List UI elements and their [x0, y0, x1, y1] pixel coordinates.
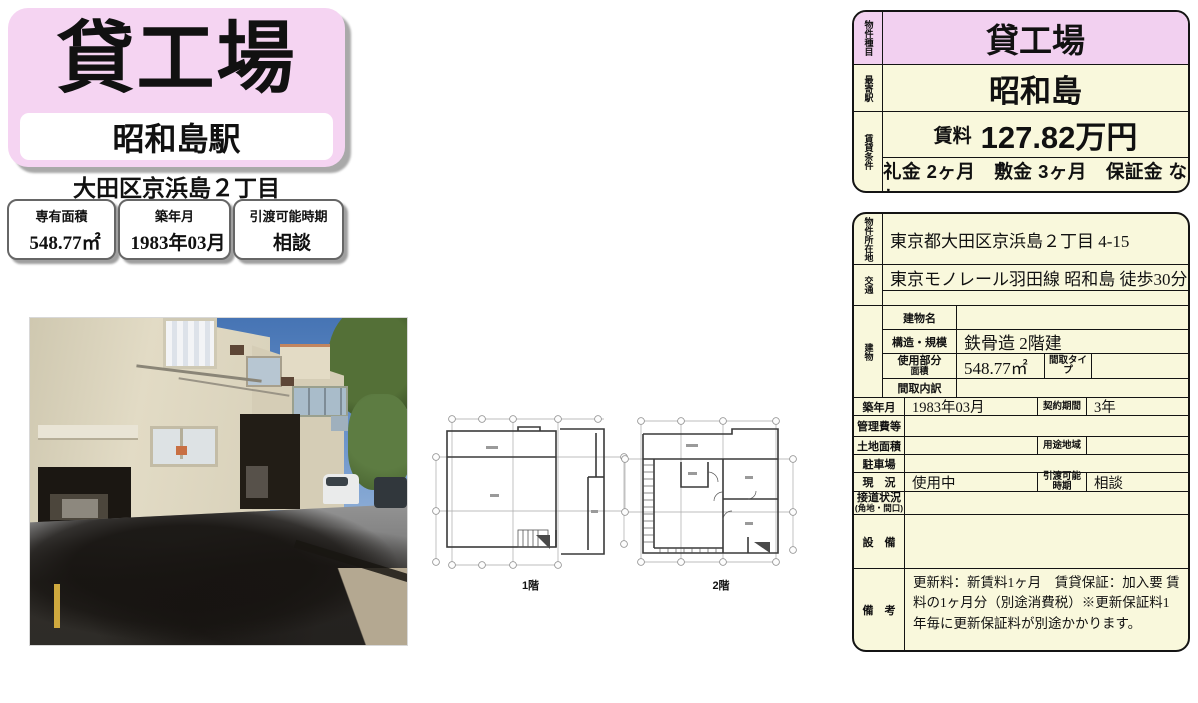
summary-type-value: 貸工場: [882, 12, 1188, 64]
term-label: 契約期間: [1037, 398, 1086, 415]
parking-value: [904, 455, 1188, 472]
detail-row-built: 築年月 1983年03月 契約期間 3年: [854, 397, 1188, 415]
detail-row-road: 接道状況 (角地・間口): [854, 491, 1188, 514]
parking-label: 駐車場: [854, 455, 904, 472]
summary-terms-label-cell: 賃貸条件: [854, 112, 882, 191]
photo-garage-truck: [62, 499, 98, 518]
fees-label: 管理費等: [854, 416, 904, 436]
fees-value: [904, 416, 1188, 436]
property-photo: [29, 317, 408, 646]
detail-row-building: 建物 建物名 構造・規模 鉄骨造 2階建 使用部分 面積 548.77㎡: [854, 305, 1188, 397]
station-box: 昭和島駅: [20, 113, 333, 160]
access-line1: 東京モノレール羽田線 昭和島 徒歩30分: [883, 265, 1188, 290]
summary-type-label-cell: 物件種目: [854, 12, 882, 64]
madori-detail-label: 間取内訳: [883, 379, 956, 397]
address-line: 大田区京浜島２丁目: [8, 169, 345, 203]
term-value: 3年: [1086, 398, 1188, 415]
notes-label: 備 考: [854, 569, 904, 650]
deposit-terms: 礼金 2ヶ月 敷金 3ヶ月 保証金 なし: [883, 157, 1188, 193]
spec-label: 専有面積: [9, 206, 114, 225]
detail-row-parking: 駐車場: [854, 454, 1188, 472]
detail-row-access: 交通 東京モノレール羽田線 昭和島 徒歩30分: [854, 264, 1188, 305]
zone-value: [1086, 437, 1188, 454]
equipment-value: [904, 515, 1188, 568]
location-value: 東京都大田区京浜島２丁目 4-15: [882, 214, 1188, 264]
status-label: 現 況: [854, 473, 904, 491]
floorplan-2f-drawing: [620, 402, 822, 574]
spec-label: 引渡可能時期: [235, 206, 342, 225]
detail-table: 物件所在地 東京都大田区京浜島２丁目 4-15 交通 東京モノレール羽田線 昭和…: [852, 212, 1190, 652]
madori-detail-value: [956, 379, 1188, 397]
photo-window-center: [246, 356, 282, 387]
photo-dark-suv: [374, 477, 407, 508]
summary-station-value: 昭和島: [882, 65, 1188, 111]
madori-type-value: [1091, 354, 1188, 378]
rent-value: 127.82万円: [981, 112, 1138, 157]
detail-row-land: 土地面積 用途地域: [854, 436, 1188, 454]
photo-rooftop-box: [280, 344, 330, 379]
spec-value: 548.77㎡: [9, 228, 114, 255]
built-label: 築年月: [854, 398, 904, 415]
status-value: 使用中: [904, 473, 1037, 491]
built-value: 1983年03月: [904, 398, 1037, 415]
rent-row: 賃料 127.82万円: [934, 112, 1138, 157]
photo-bollard: [54, 584, 60, 628]
station-name: 昭和島駅: [112, 114, 240, 160]
summary-terms-cell: 賃料 127.82万円 礼金 2ヶ月 敷金 3ヶ月 保証金 なし: [882, 112, 1188, 191]
spec-value: 1983年03月: [120, 228, 229, 255]
summary-row-terms: 賃貸条件 賃料 127.82万円 礼金 2ヶ月 敷金 3ヶ月 保証金 なし: [854, 111, 1188, 191]
road-label: 接道状況 (角地・間口): [854, 492, 904, 514]
equipment-label: 設 備: [854, 515, 904, 568]
summary-station-label-cell: 最寄駅: [854, 65, 882, 111]
summary-row-type: 物件種目 貸工場: [854, 12, 1188, 64]
summary-table: 物件種目 貸工場 最寄駅 昭和島 賃貸条件 賃料 127.82万円 礼金 2ヶ月…: [852, 10, 1190, 193]
photo-window-band: [292, 386, 348, 417]
spec-box-area: 専有面積 548.77㎡: [7, 199, 116, 260]
spec-box-handover: 引渡可能時期 相談: [233, 199, 344, 260]
photo-vent: [230, 345, 244, 355]
madori-type-label: 間取タイプ: [1044, 354, 1091, 378]
rent-label: 賃料: [934, 121, 972, 148]
detail-row-equipment: 設 備: [854, 514, 1188, 568]
zone-label: 用途地域: [1037, 437, 1086, 454]
detail-row-fees: 管理費等: [854, 415, 1188, 436]
land-value: [904, 437, 1037, 454]
handover-label: 引渡可能時期: [1037, 473, 1086, 491]
spec-label: 築年月: [120, 206, 229, 225]
title-banner: 貸工場 昭和島駅: [8, 8, 345, 167]
photo-sunlit-corner: [308, 568, 407, 645]
floorplan-2f-caption: 2階: [620, 577, 822, 593]
photo-window-curtain: [163, 318, 217, 369]
floorplan-1f-drawing: [428, 402, 633, 574]
land-label: 土地面積: [854, 437, 904, 454]
location-label-cell: 物件所在地: [854, 214, 882, 264]
photo-shutter-hood: [38, 425, 138, 440]
access-values: 東京モノレール羽田線 昭和島 徒歩30分: [882, 265, 1188, 305]
structure-value: 鉄骨造 2階建: [956, 330, 1188, 353]
building-name-value: [956, 306, 1188, 329]
floorplan-1f-caption: 1階: [428, 577, 633, 593]
detail-row-notes: 備 考 更新料：新賃料1ヶ月 賃貸保証：加入要 賃料の1ヶ月分（別途消費税）※更…: [854, 568, 1188, 650]
access-label-cell: 交通: [854, 265, 882, 305]
access-line2: [883, 291, 1188, 306]
detail-row-status: 現 況 使用中 引渡可能時期 相談: [854, 472, 1188, 491]
photo-window-small: [331, 416, 348, 431]
summary-row-station: 最寄駅 昭和島: [854, 64, 1188, 111]
notes-value: 更新料：新賃料1ヶ月 賃貸保証：加入要 賃料の1ヶ月分（別途消費税）※更新保証料…: [904, 569, 1188, 650]
handover-value: 相談: [1086, 473, 1188, 491]
spec-box-built: 築年月 1983年03月: [118, 199, 231, 260]
building-label-cell: 建物: [854, 306, 882, 397]
photo-window-interior: [176, 446, 187, 455]
building-name-label: 建物名: [883, 306, 956, 329]
area-label: 使用部分 面積: [883, 354, 956, 378]
photo-garage-glow: [246, 466, 268, 498]
building-subtable: 建物名 構造・規模 鉄骨造 2階建 使用部分 面積 548.77㎡ 間取タイプ: [882, 306, 1188, 397]
area-value: 548.77㎡: [956, 354, 1044, 378]
detail-row-location: 物件所在地 東京都大田区京浜島２丁目 4-15: [854, 214, 1188, 264]
road-value: [904, 492, 1188, 514]
photo-van-window: [326, 477, 348, 486]
structure-label: 構造・規模: [883, 330, 956, 353]
page-title: 貸工場: [8, 4, 345, 112]
photo-vent: [281, 377, 294, 386]
flyer-page: 貸工場 昭和島駅 大田区京浜島２丁目 専有面積 548.77㎡ 築年月 1983…: [0, 0, 1198, 703]
spec-value: 相談: [235, 228, 342, 255]
